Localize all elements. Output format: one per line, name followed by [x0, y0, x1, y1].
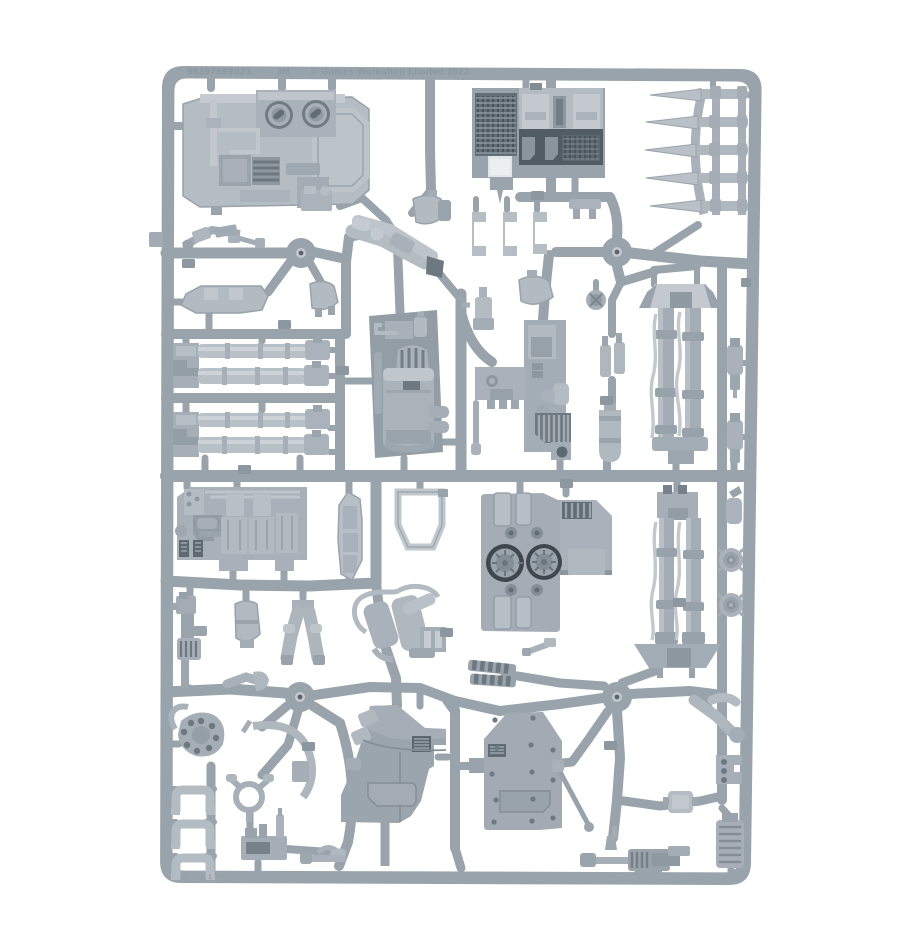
svg-text:99397599023: 99397599023 [187, 67, 251, 77]
svg-text:© Games Workshop Limited 2022: © Games Workshop Limited 2022 [311, 67, 469, 77]
svg-text:3M: 3M [277, 67, 290, 77]
svg-text:G W A 1 7 0 A: G W A 1 7 0 A [184, 872, 233, 881]
